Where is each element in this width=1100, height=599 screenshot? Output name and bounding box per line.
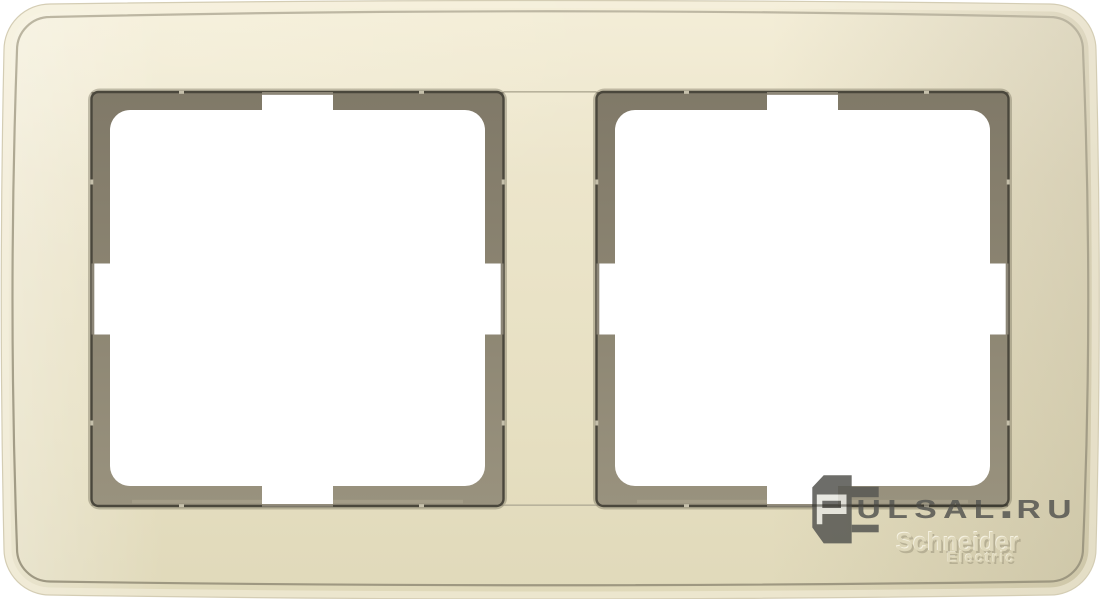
svg-text:Electric: Electric	[947, 550, 1015, 566]
svg-text:ULSAL.RU: ULSAL.RU	[857, 496, 1078, 524]
